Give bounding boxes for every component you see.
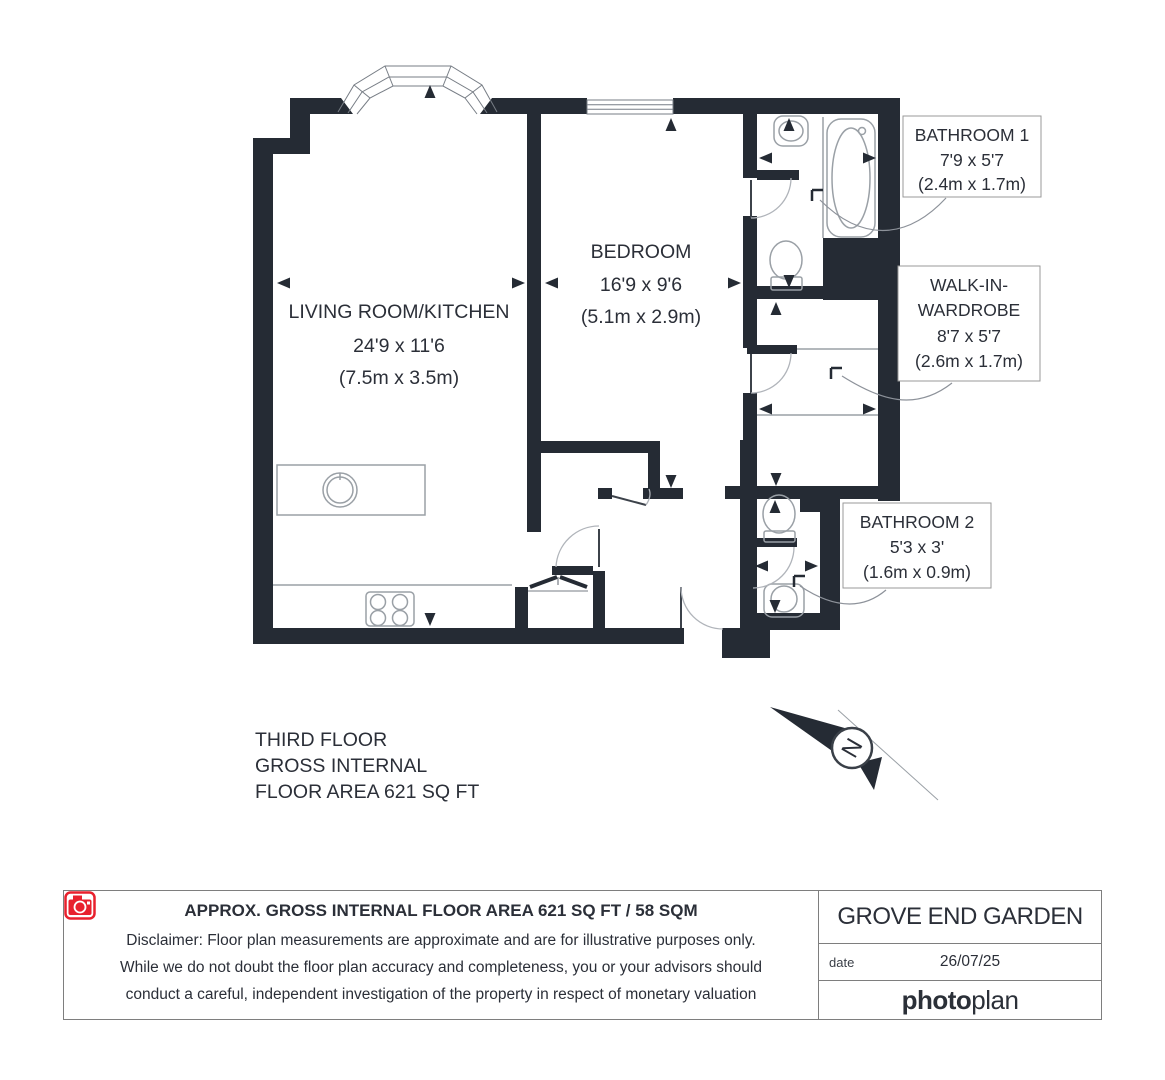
wardrobe-door: [751, 353, 791, 393]
kitchen-island: [277, 465, 425, 515]
date-value: 26/07/25: [899, 953, 1041, 971]
date-label: date: [819, 955, 899, 970]
bathroom1-metric: (2.4m x 1.7m): [918, 174, 1026, 194]
footer-disclaimer-cell: APPROX. GROSS INTERNAL FLOOR AREA 621 SQ…: [64, 891, 818, 1019]
bedroom-window: [587, 100, 673, 114]
bathroom2-name: BATHROOM 2: [860, 512, 974, 532]
entrance-door: [681, 587, 723, 629]
wardrobe-leader-arrow: [831, 368, 842, 379]
bathroom1-label: BATHROOM 1 7'9 x 5'7 (2.4m x 1.7m): [812, 116, 1041, 231]
floor-note-line1: THIRD FLOOR: [255, 729, 387, 751]
floorplan-page: LIVING ROOM/KITCHEN 24'9 x 11'6 (7.5m x …: [0, 0, 1165, 1080]
living-room-name: LIVING ROOM/KITCHEN: [288, 301, 509, 323]
bifold-closet-door: [528, 577, 588, 591]
bathroom2-metric: (1.6m x 0.9m): [863, 562, 971, 582]
property-name: GROVE END GARDEN: [819, 891, 1101, 944]
bathroom1-name: BATHROOM 1: [915, 125, 1029, 145]
north-compass: N: [770, 707, 938, 800]
bathroom1-door: [751, 178, 791, 218]
bedroom-name: BEDROOM: [591, 241, 692, 263]
disclaimer-line-3: conduct a careful, independent investiga…: [64, 981, 818, 1008]
toilet-2: [763, 495, 795, 542]
bedroom-metric: (5.1m x 2.9m): [581, 306, 701, 328]
wardrobe-name-line1: WALK-IN-: [930, 275, 1008, 295]
wardrobe-shelves: [757, 349, 878, 415]
bedroom-imperial: 16'9 x 9'6: [600, 274, 682, 296]
footer-info-cell: GROVE END GARDEN date 26/07/25 photoplan: [818, 891, 1101, 1019]
living-room-imperial: 24'9 x 11'6: [353, 335, 445, 357]
floor-note-line2: GROSS INTERNAL: [255, 755, 427, 777]
bathtub: [823, 117, 875, 238]
disclaimer-line-1: Disclaimer: Floor plan measurements are …: [64, 927, 818, 954]
disclaimer-line-2: While we do not doubt the floor plan acc…: [64, 954, 818, 981]
bathroom2-imperial: 5'3 x 3': [890, 537, 944, 557]
living-room-metric: (7.5m x 3.5m): [339, 367, 459, 389]
living-room-label: LIVING ROOM/KITCHEN 24'9 x 11'6 (7.5m x …: [288, 301, 509, 389]
bay-window: [338, 66, 497, 114]
hob: [366, 592, 414, 626]
footer: APPROX. GROSS INTERNAL FLOOR AREA 621 SQ…: [63, 890, 1102, 1020]
hallway-door: [556, 526, 599, 567]
wardrobe-imperial: 8'7 x 5'7: [937, 326, 1001, 346]
bathroom1-leader-arrow: [812, 190, 823, 201]
photoplan-logo: photoplan: [819, 981, 1101, 1019]
floor-note: THIRD FLOOR GROSS INTERNAL FLOOR AREA 62…: [255, 729, 479, 803]
toilet-1: [770, 241, 802, 290]
footer-area-title: APPROX. GROSS INTERNAL FLOOR AREA 621 SQ…: [64, 901, 818, 921]
photoplan-wordmark: photoplan: [902, 985, 1019, 1016]
wardrobe-name-line2: WARDROBE: [918, 300, 1020, 320]
wardrobe-metric: (2.6m x 1.7m): [915, 351, 1023, 371]
floor-plan: LIVING ROOM/KITCHEN 24'9 x 11'6 (7.5m x …: [0, 0, 1165, 880]
floor-note-line3: FLOOR AREA 621 SQ FT: [255, 781, 479, 803]
bathroom1-imperial: 7'9 x 5'7: [940, 150, 1004, 170]
date-row: date 26/07/25: [819, 944, 1101, 981]
camera-icon: [64, 891, 96, 920]
bedroom-label: BEDROOM 16'9 x 9'6 (5.1m x 2.9m): [581, 241, 701, 328]
